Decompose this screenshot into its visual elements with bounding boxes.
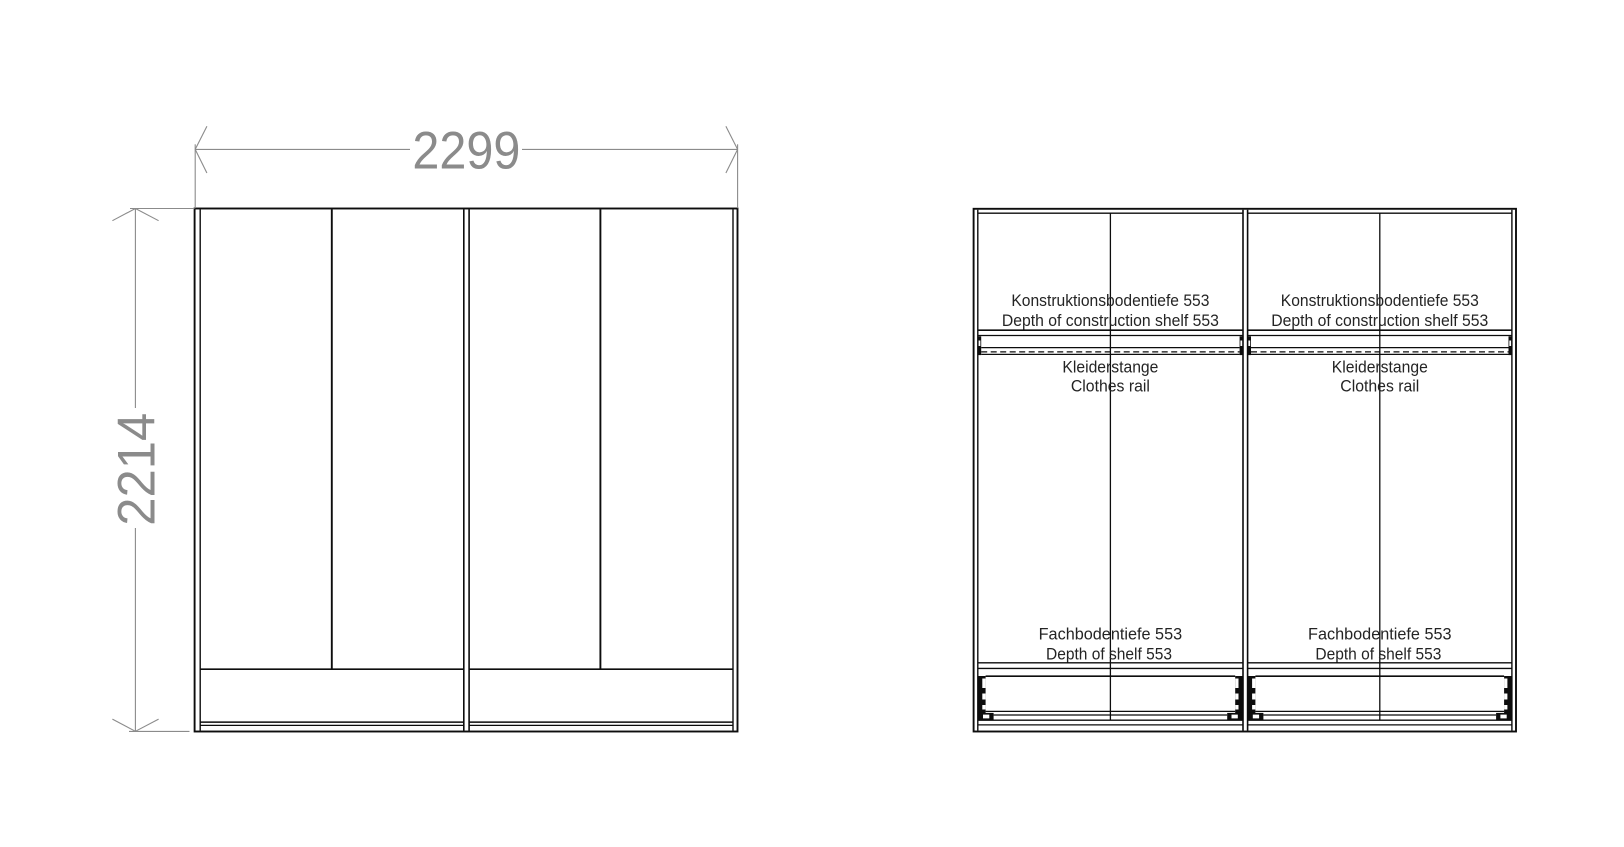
svg-text:2299: 2299 [412, 122, 520, 181]
svg-text:Depth of shelf 553: Depth of shelf 553 [1315, 646, 1441, 664]
svg-text:Depth of construction shelf 55: Depth of construction shelf 553 [1271, 312, 1488, 330]
svg-text:Konstruktionsbodentiefe 553: Konstruktionsbodentiefe 553 [1281, 292, 1479, 310]
svg-text:Fachbodentiefe 553: Fachbodentiefe 553 [1308, 626, 1452, 644]
svg-text:Konstruktionsbodentiefe 553: Konstruktionsbodentiefe 553 [1011, 292, 1209, 310]
svg-text:Kleiderstange: Kleiderstange [1332, 358, 1428, 376]
svg-text:Kleiderstange: Kleiderstange [1062, 358, 1158, 376]
svg-text:Depth of shelf 553: Depth of shelf 553 [1046, 646, 1172, 664]
svg-text:Clothes rail: Clothes rail [1340, 378, 1419, 396]
svg-text:Depth of construction shelf 55: Depth of construction shelf 553 [1002, 312, 1219, 330]
svg-text:2214: 2214 [108, 413, 167, 526]
svg-text:Fachbodentiefe 553: Fachbodentiefe 553 [1039, 626, 1183, 644]
svg-text:Clothes rail: Clothes rail [1071, 378, 1150, 396]
